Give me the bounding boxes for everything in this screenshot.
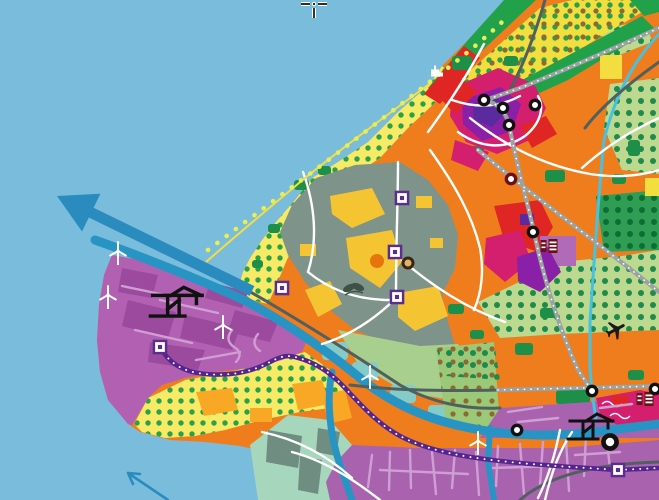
project-marker-icon[interactable] [391,291,403,303]
rail-station-icon[interactable] [530,100,539,109]
project-marker-icon[interactable] [276,282,288,294]
greenhouse-icon [541,239,558,253]
rail-station-icon[interactable] [498,103,507,112]
rail-station-icon[interactable] [479,95,488,104]
rail-station-icon[interactable] [504,120,513,129]
map-canvas[interactable] [0,0,659,500]
map-viewport[interactable] [0,0,659,500]
tan-ring-icon [403,258,413,268]
project-marker-icon[interactable] [154,341,166,353]
rail-station-icon[interactable] [528,227,537,236]
rail-station-icon[interactable] [603,435,616,448]
rail-station-icon[interactable] [650,384,659,393]
rail-station-icon[interactable] [506,174,515,183]
rail-station-icon[interactable] [512,425,521,434]
orange-disc-icon [370,254,384,268]
greenhouse-icon [637,392,654,406]
project-marker-icon[interactable] [396,192,408,204]
project-marker-icon[interactable] [612,464,624,476]
project-marker-icon[interactable] [389,246,401,258]
rail-station-icon[interactable] [587,386,596,395]
